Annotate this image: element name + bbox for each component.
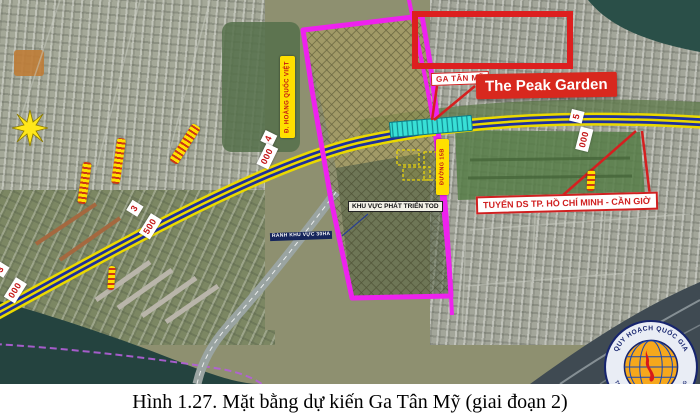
- figure-caption: Hình 1.27. Mặt bằng dự kiến Ga Tân Mỹ (g…: [132, 391, 567, 414]
- dashed-lots: [397, 150, 437, 180]
- agency-logo: QUY HOẠCH QUỐC GIA TRUNG TÂM QUY HOẠCH H…: [604, 320, 698, 384]
- road-label-15b: ĐƯỜNG 15B: [436, 139, 449, 195]
- figure-page: 3 000 3 500 4 000 5 000 ĐƯỜNG 15B Đ. HOÀ…: [0, 0, 700, 420]
- caption-bar: Hình 1.27. Mặt bằng dự kiến Ga Tân Mỹ (g…: [0, 384, 700, 420]
- building-marker: [586, 170, 595, 191]
- star-landmark-icon: [12, 110, 48, 146]
- map-linework: [0, 0, 700, 384]
- river-topright: [588, 0, 700, 52]
- road-label-hoang-quoc-viet: Đ. HOÀNG QUỐC VIỆT: [280, 56, 295, 138]
- map-canvas: 3 000 3 500 4 000 5 000 ĐƯỜNG 15B Đ. HOÀ…: [0, 0, 700, 384]
- green-field-south: [455, 130, 645, 200]
- apartment-rows: [36, 204, 218, 322]
- tod-zone-label: KHU VỰC PHÁT TRIỂN TOD: [348, 201, 443, 212]
- river-bottomleft: [0, 300, 260, 384]
- peak-garden-banner: The Peak Garden: [476, 72, 617, 100]
- peak-garden-outline: [415, 14, 570, 66]
